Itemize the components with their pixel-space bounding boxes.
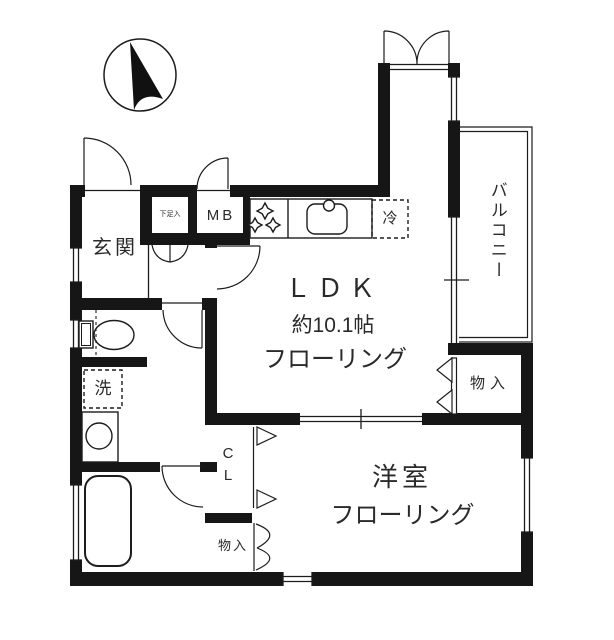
wall	[448, 121, 460, 217]
kitchen-faucet-icon	[324, 200, 335, 211]
sliding-door	[300, 409, 422, 429]
room-label-washer: 洗	[92, 380, 114, 399]
wall	[378, 63, 390, 197]
wall	[70, 462, 160, 472]
wall	[140, 185, 197, 197]
room-label-meter-box: MB	[199, 208, 243, 225]
entrance-door-swing	[84, 138, 131, 185]
hall-ldk-door-swing	[217, 246, 260, 289]
wall	[448, 343, 533, 355]
wall	[312, 572, 533, 586]
room-label-ldk-floor: フローリング	[255, 347, 415, 373]
wall	[205, 298, 217, 415]
window	[283, 572, 312, 586]
room-label-western-room: 洋室	[337, 463, 467, 492]
washbasin-icon	[86, 423, 112, 449]
wall	[70, 357, 147, 367]
room-label-ldk-size: 約10.1帖	[258, 314, 408, 337]
wall	[521, 413, 533, 458]
room-label-western-room-floor: フローリング	[320, 503, 485, 529]
wall	[521, 532, 533, 586]
corridor-double-doors	[384, 31, 449, 64]
wall	[205, 413, 300, 425]
wall	[230, 185, 390, 197]
wall	[205, 513, 252, 523]
meter-box-door-swing	[197, 158, 228, 189]
room-label-balcony: バルコニー	[487, 181, 506, 311]
bathtub-icon	[85, 476, 131, 566]
room-label-ldk: ＬＤＫ	[258, 274, 408, 303]
window	[70, 485, 82, 560]
wall	[70, 185, 85, 197]
room-label-storage-right: 物入	[461, 376, 519, 393]
toilet-tank	[82, 324, 91, 346]
wall	[521, 343, 533, 425]
compass	[104, 39, 176, 111]
wall	[448, 63, 460, 77]
storage-bottom-doors	[254, 523, 270, 571]
room-label-entrance: 玄関	[92, 237, 138, 259]
toilet-door-swing	[163, 310, 202, 348]
wall	[200, 462, 217, 472]
room-label-shoe-cabinet: 下足入	[154, 211, 186, 219]
storage-right-door-fold-icon	[437, 390, 452, 414]
window	[448, 77, 460, 121]
closet-door-fold-icon	[257, 490, 276, 508]
wall	[70, 197, 82, 248]
storage-right-door-fold-icon	[437, 358, 452, 382]
shoe-cabinet-doors	[152, 245, 188, 262]
toilet-bowl	[94, 321, 134, 350]
window	[521, 458, 533, 532]
closet-door-fold-icon	[257, 427, 276, 445]
wall	[140, 233, 250, 245]
room-label-closet: CL	[219, 445, 236, 500]
wall	[70, 298, 162, 310]
wall	[202, 298, 217, 310]
wall	[70, 572, 283, 586]
threshold-line	[390, 65, 448, 70]
floor-plan: 玄関 下足入 MB 冷 ＬＤＫ 約10.1帖 フローリング バルコニー 物入 C…	[0, 0, 614, 640]
room-label-refrigerator: 冷	[380, 211, 400, 228]
room-label-storage-bottom: 物入	[212, 539, 254, 553]
bathroom-door-swing	[162, 466, 203, 507]
wall	[422, 413, 533, 425]
window	[70, 248, 82, 282]
